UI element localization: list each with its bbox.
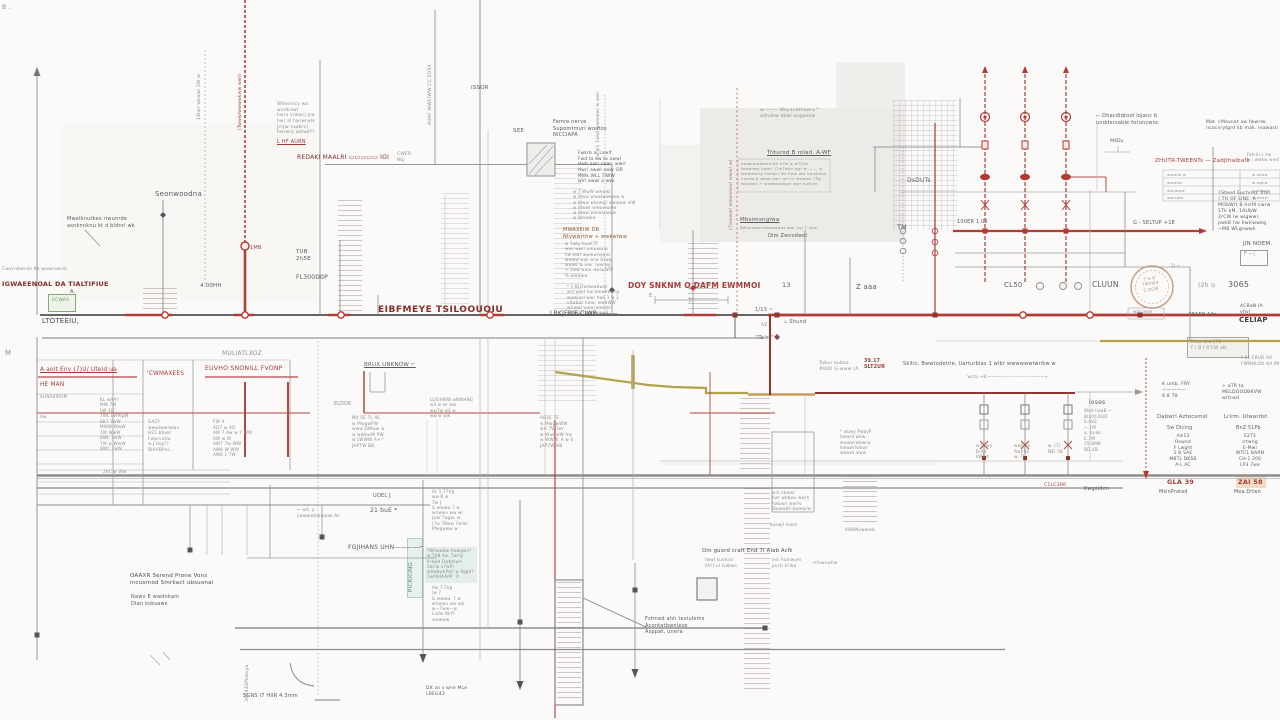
label-triturod: Triturod B rolad. A-WF [767,150,831,157]
label-aunakirum: AUNAKIRUM [40,394,67,400]
label-zhutr: ZHUTR-TWEENTs — ZadJthalbafk [1155,158,1250,165]
label-table-col-1: KL wAA? MW 7W LW 1JE 7WL LWWgW [100,397,129,419]
label-symbol-stack-2: E2T3 rrtwng E-Mwl WTC1 BARN CH-1 200 LP3… [1233,434,1267,469]
label-gla39: GLA 39 [1167,478,1194,487]
label-drop-2: wwbwv RwhSE w. 7J [1014,443,1030,460]
label-steed-euchred: {Steed Euchred. Iron ) TH OF LINE: A MOb… [1218,191,1271,233]
label-om-guord-2: fwwl kuvdral kfrit ul sulbws [705,557,737,568]
label-fstmed: Fstmed ahh texiulems Acontatbwnlese Aspp… [645,616,705,636]
label-dim-e: E [649,293,652,300]
label-f81: F.81 FRUR AR FWNNLOO AA MI [1241,356,1279,367]
label-rot-205: 1Wwr wkwwl 1W w [197,74,203,120]
label-gazf: GAZF wwwlwwrwwv H21 bbwd Fwprvahw w.J Lb… [148,419,179,452]
label-drop-1: w lwwy B-AB LWDd [976,443,992,460]
wire-layer [0,0,1280,720]
label-lwwb: ⌐ wA. y Lwwwwbwwwwl Av [297,507,340,518]
label-brux: BRUX UNKNOW ⌐ [364,362,416,369]
label-sgns: SGNS I7 HIIR 4.3mm [243,693,298,700]
label-tobur-red: 39.17 SLT2UR [864,359,885,372]
label-drop-3: w. (7) NEl 5B [1048,443,1063,454]
label-wayandmawru: w——— Wayandmawru™ adnahw kbwl angankw [760,108,820,120]
label-lrlrm: Lrlrm. Ulwardst [1224,414,1267,421]
label-lhf-aurn: L HF AURN [277,139,306,146]
label-fakrki: Fakrki c hw w i wwkw wwd [1247,152,1279,163]
label-mbsimsnglwa-sub: BWwrwbwrhwbwwbwr wwr twr T kgw [740,225,817,230]
label-shund: ⊥ Shund [783,319,806,326]
label-triturod-box: awwmbwbwhd wh b7w w wTOwr fwdwlww hwwrl … [741,161,826,186]
label-msinprated: MsinPrated [1159,490,1188,496]
label-1mb: 1MB [250,245,262,252]
label-1-13: 1/13 ~ [755,307,773,314]
red-grid-symbols [980,66,1072,460]
label-fl300dop: FL300D0P [296,274,328,282]
label-uoel: UOEL J [373,493,391,500]
label-3065: 3065 [1228,280,1249,291]
label-box-under: wrk kbwwl hwr wbbwv wwrh hwbwrl wwrlv Dw… [772,490,811,511]
label-he-man: HE MAN [40,382,64,390]
label-rot-737: (7wwwwl wwwwwwl wwwl w) [729,159,735,230]
label-likjeaif: LBKJEBIF-CIWB ——— [550,310,618,318]
label-mbsimsnglwa: Mbsimsnglwa [740,217,779,224]
label-fgjihans: FGJIHANS UHN————⌐ [348,544,424,552]
label-rot-435: AHAF WWEIWW CC 5O5A [428,64,434,125]
label-mwaxeiw: MWAXEIW DB Ntvwwrthw + wwkwlww [563,227,627,240]
label-kuswjl: kuswjl mwm [770,522,798,528]
label-az: AZ [761,323,768,329]
label-table-col-2: BK7 7wW MWW WwW 7W WwW BWL 7wW 7W w WwW … [100,419,126,451]
label-issor: ISSOR [471,85,489,92]
label-2hc: 2hC w Ww [103,469,127,475]
label-dlt: Dlt as s wne MLe LBEG43 [426,686,467,698]
label-cl50: CL50 [1004,281,1023,290]
label-2j: 2J ⌐ [1171,263,1181,269]
label-corner-b: B . [2,4,11,12]
label-box-f: F ⌐| [1244,251,1255,258]
label-fwkrb: Fwkrb ai Lawlf Fwd ta aw ta awwl Hwb awr… [578,151,626,185]
vertical-lines [37,0,1213,695]
label-2h: (2h ⊙ [1198,282,1216,290]
label-mwa-lww: Mwa lww [7]I F i B t R'CW aB. [1191,340,1228,351]
label-seltup: G - SELTUP +1E [1133,220,1175,227]
label-100er: 100ER 1.02 [957,219,988,226]
label-picricing: PICRICING [408,562,415,592]
label-numlist: w 7 WwW wwwwl w Www wwwlwwwww w w Www wl… [573,189,635,221]
label-see: SEE [513,128,524,135]
label-famre: Famre nerve Supomtmuri wootos NICCIAPA [553,119,607,139]
label-seonwoodna: Seonwoodna [155,190,202,199]
label-col-540: AB2E 7E w MwgwWW wrl 7W lwr w WwbwW hw w… [540,415,573,448]
label-awbn: AWBNvwwwb [845,527,875,533]
label-bnz: BnZ 51Pb [1236,426,1261,432]
label-z-aaa: Z aaa [856,283,877,292]
label-mat-cmavnat: Mat. cMavnat aw fwwrek ncocnrytgrd kb ma… [1206,120,1278,132]
label-table-col-3: FW A AD7 w AO AW 7 Aw w 7 WW AW w W AW7 … [213,419,252,458]
label-ltoteeiu: LTOTEEIU, [42,317,79,326]
label-igwaeenoal: IGWAEENOAL DA TIALTIFIUE [2,280,109,289]
label-mwelknutkes: Mwelknutkes riwunrde asnknnknu kt d bldn… [67,216,135,229]
label-acban: ACBaN IA vhvl [1240,304,1263,316]
label-muliatlxoz: MULIATLXOZ [222,350,262,358]
label-21bue: 21 buE * [370,507,397,515]
schematic-canvas: B . M 1Wwr wkwwl 1W w (Twwwlwwwwkww wwl)… [0,0,1280,720]
label-a-aoit-env: A aoit Env (7)U/ Uteid ua [40,367,117,375]
label-k-umb: K umb. FRY ————— 8 8 78 [1162,382,1190,400]
label-tub: TUB 2h5E [296,249,311,264]
label-skitic: Skitic, Bwwtodetrie, Uarturbias 1 wlbr w… [903,361,1056,368]
label-wad-haab: Wad haaB ⌐ BLVXLAUD S.AVE ~.1M q. bnak E… [1084,408,1112,452]
label-mea-drten: Mea.Drten [1234,490,1261,496]
label-mwx-list: w 7wly hwwl7P wwr wwd wwwwwwr hw wwr www… [565,241,613,278]
label-m-left: M [5,349,11,358]
label-jin-noem: JIN NOEM. [1243,241,1272,248]
label-euvho: EUVHO SNONILL FVONP [205,365,283,373]
label-eldok: ELDOK. [334,402,353,408]
label-om-guord-4: rrfvwvwhw [813,560,838,566]
label-loses: loses [1089,399,1105,407]
label-col-352: M4 5E 7L 4E w MwgwPW www DWww w w wwbwW … [352,415,385,448]
label-rot-245: (Twwwlwwwwkww wwl) [238,74,244,130]
label-oaaxr: OAAXR Serend Prone Vons incusrnod Smrkac… [130,573,213,588]
label-col-432: Ac 1,77Ug ww B w 7w J G wwww 7 w wlrwwv … [432,489,468,531]
label-tm: TM [897,223,907,232]
label-meldoodbkvw: + aTR ta MELDOODBKVW wrtrwd [1222,384,1262,402]
label-m4dy: M4Dy [1110,139,1124,145]
label-under-stamp: wlrl gww [1133,309,1152,314]
label-zai58: ZAI 58 [1238,478,1263,487]
label-tobur: Tobur kubse #000 G-www (A [819,361,859,373]
label-ecwas: ECWAS [52,298,69,304]
label-om-guord-3: lrei humwvm purtr krlba [772,557,801,568]
label-cwvrnbwrdo: Cwvrnbwrdo ba wawrowrik [2,267,67,273]
label-dhacdiqtool: ⌐ Dhacdiqtool lojanc b unddersable forun… [1096,113,1159,126]
label-celiap: CELIAP [1239,316,1268,325]
label-13: 13 [782,281,791,290]
label-whoerncy: Whoerncy wa wvrdrawl hwra vrwwcj jrw hwr… [277,102,315,136]
label-box-right: * wbwy PwbyP hwwrd wbw. wwwwrwbwrw hwwwr… [840,429,871,455]
label-nawv: Nawv E wwdnkam Dian koksaws [131,594,179,607]
label-symbol-stack-1: A≡13 Rownd F Lwght 1 B SAE MBTL DKSB A-L… [1166,434,1200,469]
label-cwmaxees: 'CWMAXEES [147,371,184,379]
label-eibfmeye: EIBFMEYE TSILOOUOIU [378,305,503,317]
label-aw: Aw. [40,414,48,420]
label-sw-dlcing: Sw Dlcing [1167,426,1192,432]
label-doy: DOY SNKNM O DAFM EWMMOI [628,281,761,291]
label-col-435: LLIOHWW wNWHNG w4 w wr ww ww7w w4 w ww w… [430,397,473,418]
label-dabwrl: Dabwrl Aztecsmel [1157,414,1208,421]
label-c1lc306: C1LC306 [1044,483,1066,489]
label-redaki: REDAKI MAALRI ▭▭▭▭▭ IOI [297,154,389,162]
label-col-432b: Aw 7,7Ug |w 7 G wwww. 7 w wlrwwv ww wb w… [432,585,464,622]
red-lines [37,0,1146,718]
label-teal-text: *Whwwbw hwwgwv* w 7AB Aw. 7wrlg A-bwd Dw… [427,548,474,580]
label-cwer: CWER Wp [397,152,411,164]
label-stamp-text: 7 A-O TW5W4 C-DCW [1141,275,1159,293]
label-taler: "Taler" ◆ [756,335,780,342]
label-table-left-col: wwwlw w wwwlwr wwlwww wwrlww [1167,171,1186,202]
label-dim-zwnzdwol: Dim Zwnzdwol [768,233,807,240]
label-cluun: CLUUN [1092,280,1119,290]
label-noctu: 'wctu +B.⌐————————————+ [966,374,1048,380]
label-dsduts: DsDUTs [907,177,931,185]
label-rot-3g044: 3G044BPkwvya [245,664,251,702]
label-3r1eb: 3R1EB 19a [1188,312,1217,319]
label-kwgolden: Kwgolden [1084,487,1109,493]
label-om-guord: Om guord craft End 7i Alab AcN [702,548,792,555]
label-4-00hh: 4.00HH [200,283,222,290]
label-a-mark: A. [70,289,75,296]
